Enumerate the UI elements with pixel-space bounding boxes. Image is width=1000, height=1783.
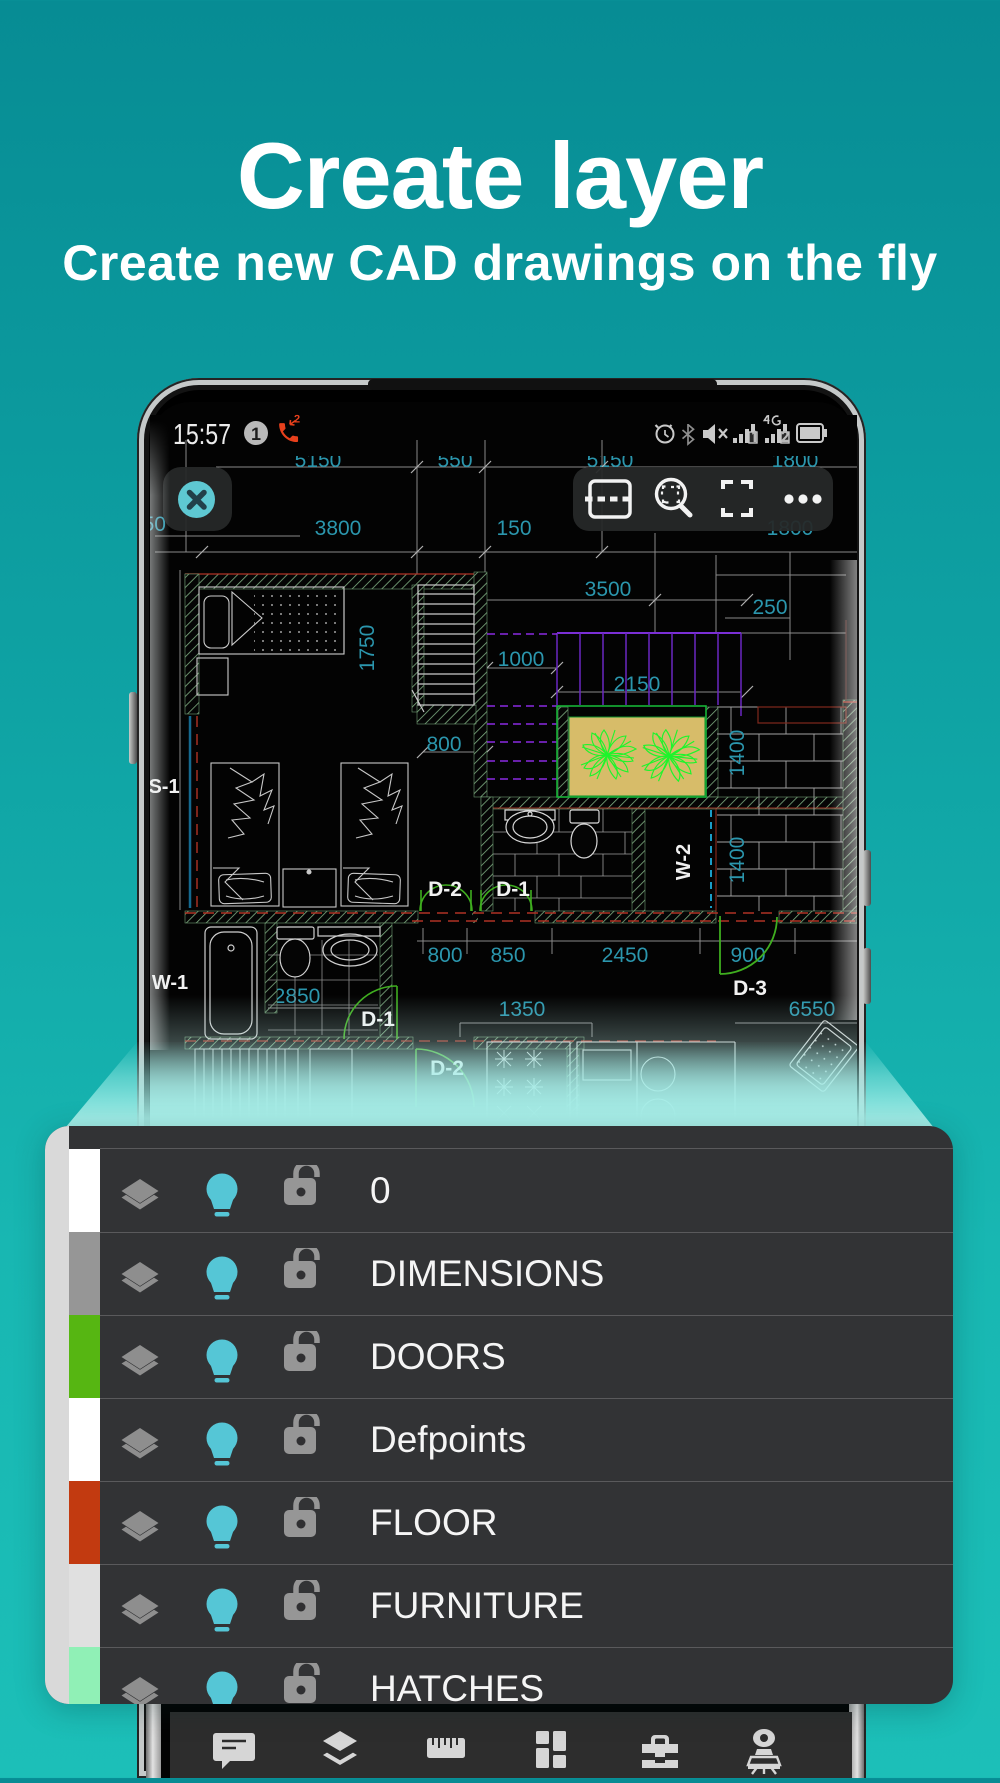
svg-text:2150: 2150	[614, 673, 661, 696]
svg-text:150: 150	[496, 517, 531, 540]
svg-text:900: 900	[730, 944, 765, 967]
svg-text:1000: 1000	[498, 648, 545, 671]
svg-text:850: 850	[490, 944, 525, 967]
svg-text:800: 800	[426, 733, 461, 756]
svg-text:3500: 3500	[585, 578, 632, 601]
svg-text:D-2: D-2	[428, 878, 462, 901]
svg-text:250: 250	[752, 596, 787, 619]
svg-text:800: 800	[427, 944, 462, 967]
svg-text:D-1: D-1	[496, 878, 530, 901]
svg-text:1400: 1400	[726, 837, 749, 884]
svg-text:3800: 3800	[315, 517, 362, 540]
svg-text:2450: 2450	[602, 944, 649, 967]
svg-text:1400: 1400	[726, 730, 749, 777]
svg-text:W-2: W-2	[673, 844, 695, 880]
svg-text:2: 2	[294, 414, 300, 426]
svg-text:1: 1	[251, 424, 261, 444]
svg-text:15:57: 15:57	[173, 419, 231, 451]
svg-text:1750: 1750	[356, 625, 379, 672]
